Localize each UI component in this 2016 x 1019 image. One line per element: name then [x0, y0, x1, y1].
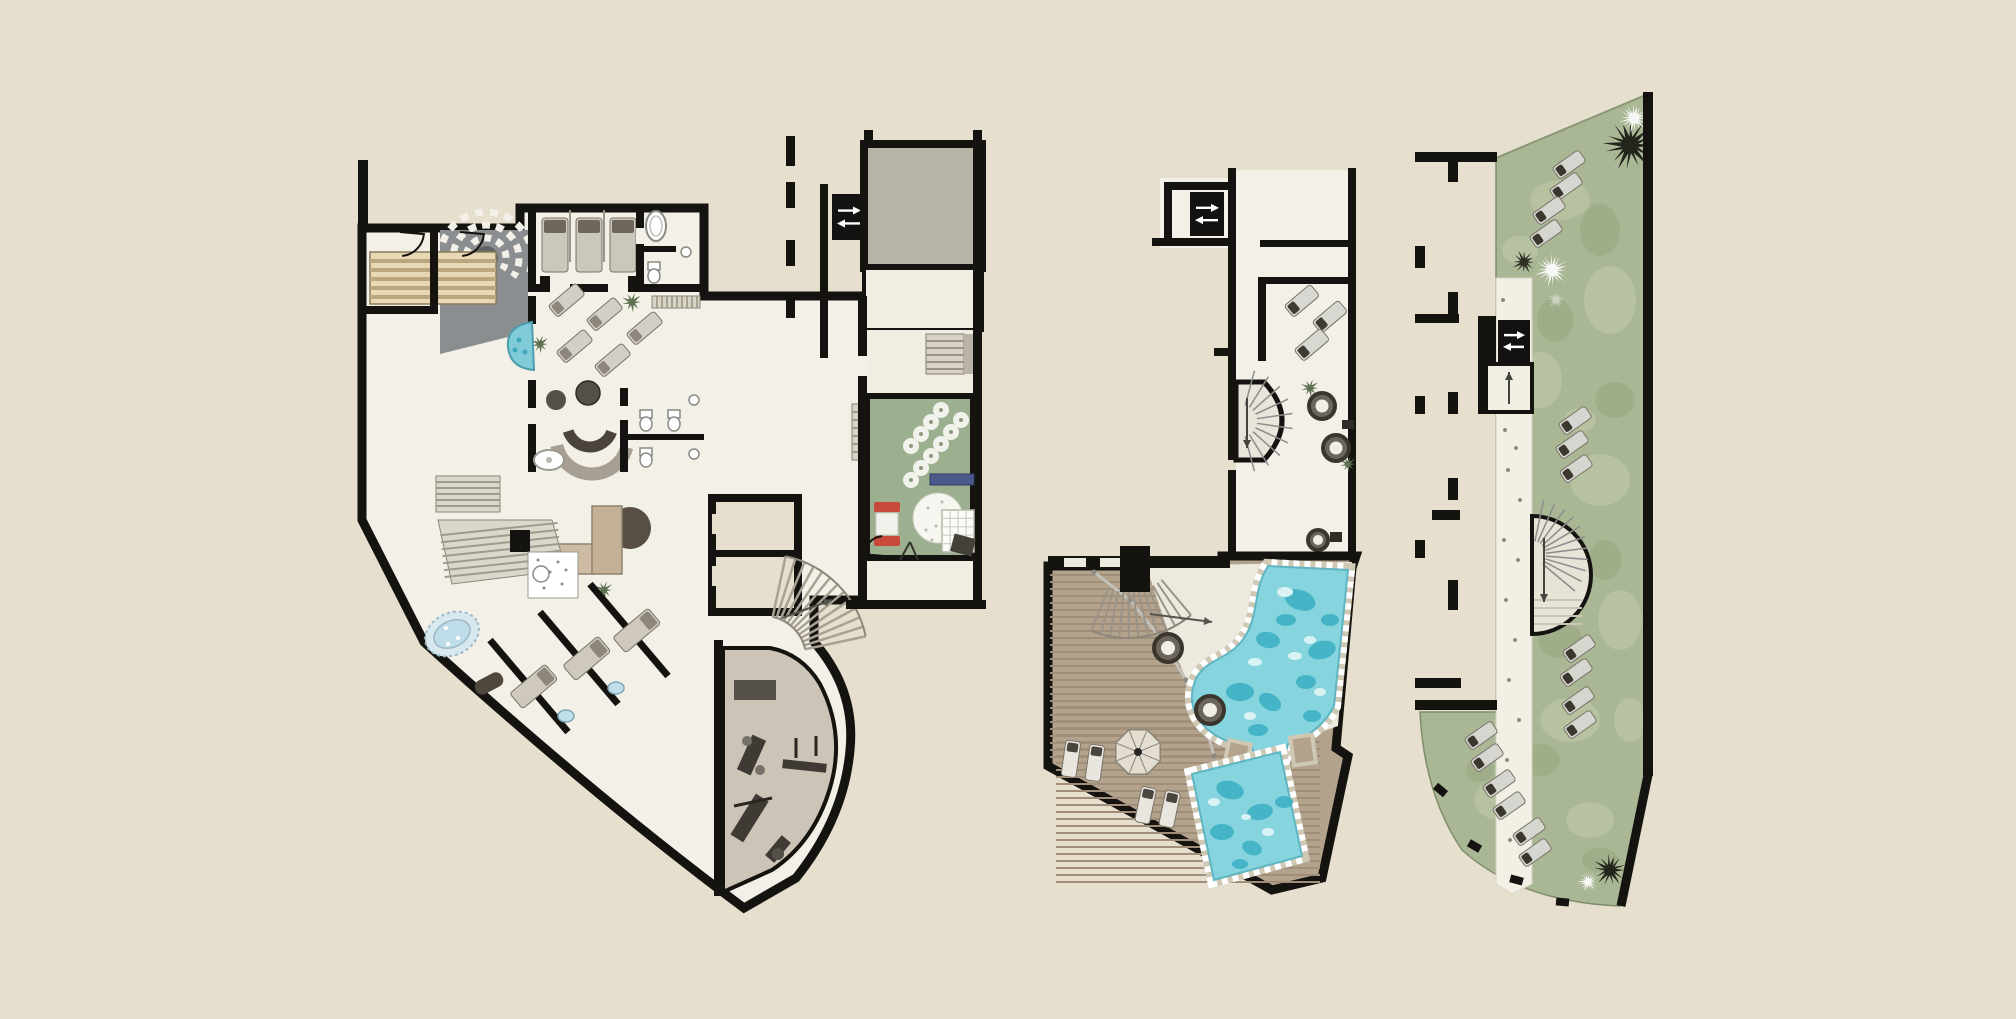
sofa	[592, 506, 622, 574]
toilet-bowl	[648, 269, 660, 283]
wall-stub	[1432, 510, 1460, 520]
shower	[528, 552, 578, 598]
water-glint	[1277, 587, 1293, 597]
elevator-icon	[1190, 192, 1224, 236]
water-glint	[1304, 636, 1316, 644]
dot	[1514, 446, 1518, 450]
dot	[931, 539, 934, 542]
dot	[537, 559, 540, 562]
dot	[909, 444, 913, 448]
treatment-bed	[542, 218, 568, 272]
dot	[919, 466, 923, 470]
dot	[919, 432, 923, 436]
kids-table	[876, 513, 898, 535]
wall-dash	[786, 182, 795, 208]
wall	[528, 296, 536, 324]
dot	[1518, 498, 1522, 502]
towel-shelf	[652, 296, 700, 308]
wicker-chair	[1309, 393, 1335, 419]
wall-stub	[1415, 152, 1497, 162]
wall	[1260, 277, 1356, 284]
basin-drain	[546, 457, 552, 463]
dot	[523, 350, 528, 355]
stairwell	[1236, 382, 1282, 460]
side-table	[1342, 420, 1354, 429]
water-blob	[1303, 710, 1321, 722]
lawn-mottle	[1584, 266, 1636, 334]
chair-cushion	[1161, 641, 1175, 655]
wall-stub	[1415, 314, 1459, 323]
side-table	[1330, 532, 1342, 542]
water-glint	[1314, 688, 1326, 696]
lounger-pillow	[1066, 742, 1078, 752]
water-blob	[1232, 859, 1248, 869]
wall	[430, 228, 438, 314]
sink	[681, 247, 691, 257]
wall	[1415, 700, 1497, 710]
wall-stub	[1415, 246, 1425, 268]
dot	[909, 478, 913, 482]
dot	[1505, 758, 1509, 762]
wall	[1152, 238, 1236, 246]
wall-stub	[864, 130, 873, 146]
door-gap	[712, 514, 720, 534]
dot	[939, 408, 943, 412]
dot	[1212, 754, 1217, 759]
wall	[712, 550, 798, 557]
dot	[1504, 598, 1508, 602]
sink	[689, 395, 699, 405]
wall	[820, 184, 828, 358]
door-gap	[1064, 558, 1086, 567]
storage-room	[864, 144, 982, 268]
wicker-chair	[1154, 634, 1182, 662]
wall	[846, 600, 986, 609]
dot	[1501, 298, 1505, 302]
dot	[1517, 718, 1521, 722]
elevator-shaft	[1190, 192, 1224, 236]
door-gap	[858, 356, 867, 376]
dot	[1507, 678, 1511, 682]
water-blob	[1276, 614, 1296, 626]
wall	[1643, 92, 1653, 776]
dot	[1508, 838, 1512, 842]
floor-plan-sheet	[0, 0, 2016, 1019]
lawn-shade	[1595, 382, 1635, 418]
water-glint	[1288, 652, 1302, 660]
lounger-pillow	[612, 220, 634, 233]
wall-dash	[786, 292, 795, 318]
wall	[1348, 252, 1356, 568]
dot	[949, 430, 953, 434]
water-glint	[1248, 658, 1262, 666]
dot	[929, 454, 933, 458]
water-glint	[1262, 828, 1274, 836]
sink	[689, 449, 699, 459]
weight-plate	[742, 736, 752, 746]
wall-stub	[1415, 678, 1461, 688]
chair-cushion	[1203, 703, 1217, 717]
wall	[644, 246, 676, 252]
wall	[1258, 277, 1266, 361]
dot	[513, 348, 518, 353]
parasol-pole	[1134, 748, 1142, 756]
dot	[941, 501, 944, 504]
toilet-bowl	[640, 453, 652, 467]
lounger-pillow	[544, 220, 566, 233]
chair-cushion	[1330, 442, 1343, 455]
elevator-shaft	[1498, 320, 1530, 362]
lawn-mottle	[1566, 802, 1614, 838]
lawn-shade	[1589, 540, 1621, 580]
door-gap	[528, 408, 536, 424]
dot	[935, 525, 938, 528]
wall	[540, 276, 550, 286]
lawn-mottle	[1614, 698, 1646, 742]
corridor-floor	[864, 558, 982, 602]
water-blob	[1296, 675, 1316, 689]
dot	[456, 636, 460, 640]
dot	[939, 442, 943, 446]
toilet-bowl	[640, 417, 652, 431]
wall	[1164, 182, 1232, 190]
elevator-icon	[1498, 320, 1530, 362]
wall	[1120, 546, 1150, 592]
lawn-shade	[1537, 298, 1573, 342]
wall-stub	[358, 160, 368, 230]
floor-plans-svg	[0, 0, 2016, 1019]
wall	[1228, 168, 1236, 356]
gym-mat	[734, 680, 776, 700]
door-gap	[636, 228, 644, 244]
wall-dash	[786, 240, 795, 266]
door-gap	[712, 566, 720, 586]
weight-plate	[755, 765, 765, 775]
wall-dash	[786, 136, 795, 166]
lounger-pillow	[578, 220, 600, 233]
stool	[546, 390, 566, 410]
lounger-pillow	[1090, 746, 1102, 756]
wall-stub	[1415, 396, 1425, 414]
wall-stub	[1448, 478, 1458, 500]
parasol	[1116, 730, 1160, 774]
wall	[510, 530, 530, 552]
dot	[925, 529, 928, 532]
water-glint	[1208, 798, 1220, 806]
terrace-floor	[1236, 170, 1356, 568]
boundary-tick	[1556, 897, 1570, 906]
chair-cushion	[1313, 535, 1323, 545]
wall-stub	[1448, 580, 1458, 610]
wall	[628, 434, 704, 440]
dot	[959, 418, 963, 422]
dot	[1503, 428, 1507, 432]
wall	[620, 388, 628, 472]
door-gap	[608, 284, 628, 292]
dot	[929, 420, 933, 424]
foot-bath	[558, 710, 574, 722]
toilet-bowl	[668, 417, 680, 431]
dot	[1502, 538, 1506, 542]
lawn-mottle	[1598, 590, 1642, 650]
treatment-bed	[576, 218, 602, 272]
water-blob	[1210, 824, 1234, 840]
wall	[636, 208, 644, 292]
dot	[1092, 570, 1097, 575]
wall	[528, 208, 536, 292]
wicker-chair	[1196, 696, 1224, 724]
treatment-bed	[610, 218, 636, 272]
gym-bike-wheel	[772, 848, 784, 860]
stool	[576, 381, 600, 405]
dot	[1506, 468, 1510, 472]
water-glint	[1241, 814, 1251, 820]
dot	[517, 338, 522, 343]
dot	[444, 626, 448, 630]
dot	[1513, 638, 1517, 642]
water-glint	[1244, 712, 1256, 720]
wall-stub	[1448, 392, 1458, 414]
water-blob	[1248, 724, 1268, 736]
dot	[565, 569, 568, 572]
wall	[362, 306, 436, 314]
wicker-chair	[1323, 435, 1349, 461]
dot	[543, 587, 546, 590]
foot-bath	[608, 682, 624, 694]
wall	[1260, 240, 1356, 247]
dot	[561, 583, 564, 586]
door-gap	[620, 406, 628, 420]
dot	[927, 507, 930, 510]
wall	[1164, 182, 1172, 244]
sheet-background	[0, 0, 2016, 1019]
chair-cushion	[1316, 400, 1329, 413]
dot	[1516, 558, 1520, 562]
kids-bench-red	[874, 502, 900, 512]
wall-stub	[1415, 540, 1425, 558]
water-blob	[1321, 614, 1339, 626]
lawn-shade	[1580, 204, 1620, 256]
wicker-chair	[1308, 530, 1328, 550]
kids-bench-blue	[930, 474, 974, 485]
room-floor	[864, 268, 982, 330]
dot	[446, 642, 450, 646]
dot	[557, 561, 560, 564]
pool-pier	[1290, 735, 1316, 766]
water-blob	[1226, 683, 1254, 701]
wall	[1214, 348, 1236, 356]
water-blob	[1275, 796, 1293, 808]
wall-stub	[1448, 162, 1458, 182]
